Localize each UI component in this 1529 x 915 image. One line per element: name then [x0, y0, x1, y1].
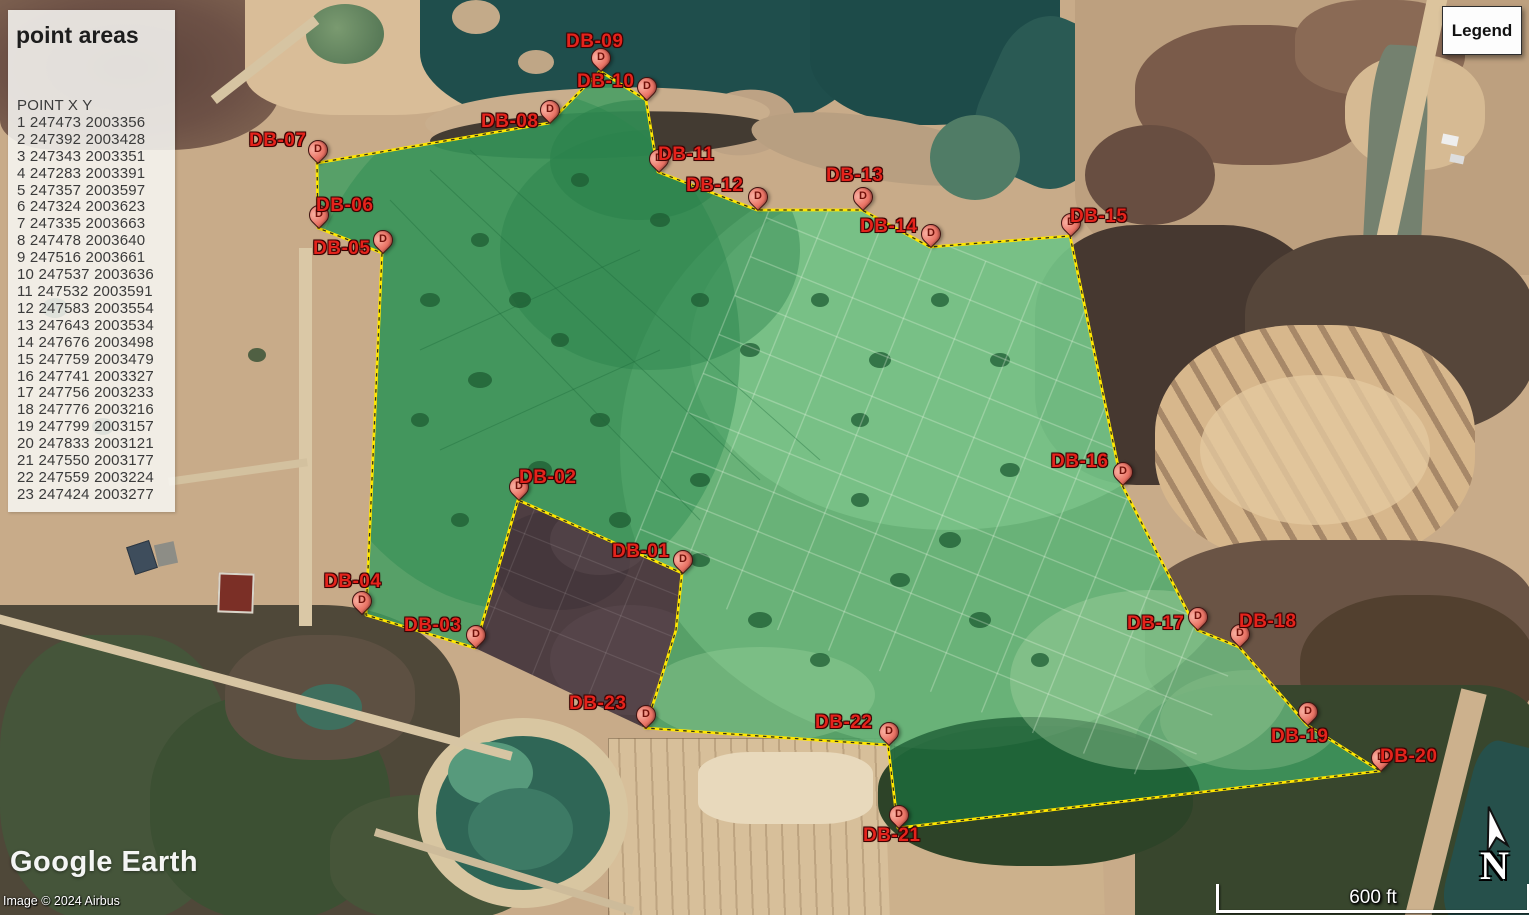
point-list-row: 15 247759 2003479: [17, 352, 154, 369]
pin-letter: D: [637, 706, 655, 724]
pin-icon[interactable]: D: [744, 183, 772, 211]
point-list-row: 10 247537 2003636: [17, 267, 154, 284]
point-list-row: 21 247550 2003177: [17, 453, 154, 470]
pin-letter: D: [1114, 463, 1132, 481]
placemark-label-db-22[interactable]: DB-22: [815, 712, 872, 734]
pin-icon[interactable]: D: [917, 220, 945, 248]
point-list-row: 4 247283 2003391: [17, 166, 154, 183]
pin-icon[interactable]: D: [669, 546, 697, 574]
placemark-label-db-01[interactable]: DB-01: [612, 541, 669, 563]
placemark-label-db-07[interactable]: DB-07: [249, 130, 306, 152]
point-list-row: 3 247343 2003351: [17, 149, 154, 166]
pin-icon[interactable]: D: [632, 701, 660, 729]
pin-icon[interactable]: D: [1294, 698, 1322, 726]
point-list-row: 1 247473 2003356: [17, 115, 154, 132]
north-letter: N: [1480, 842, 1509, 889]
pin-icon[interactable]: D: [304, 136, 332, 164]
point-list-row: 9 247516 2003661: [17, 250, 154, 267]
point-list-row: 11 247532 2003591: [17, 284, 154, 301]
pin-letter: D: [541, 101, 559, 119]
point-coordinate-list: POINT X Y 1 247473 20033562 247392 20034…: [17, 98, 154, 504]
point-list-row: 19 247799 2003157: [17, 419, 154, 436]
pin-letter: D: [674, 551, 692, 569]
placemark-label-db-04[interactable]: DB-04: [324, 571, 381, 593]
point-list-header: POINT X Y: [17, 98, 154, 115]
point-list-row: 23 247424 2003277: [17, 487, 154, 504]
pin-letter: D: [638, 78, 656, 96]
placemark-label-db-10[interactable]: DB-10: [577, 71, 634, 93]
pin-letter: D: [1189, 608, 1207, 626]
pin-letter: D: [922, 225, 940, 243]
pin-letter: D: [749, 188, 767, 206]
pin-letter: D: [467, 626, 485, 644]
point-list-row: 13 247643 2003534: [17, 318, 154, 335]
placemark-label-db-19[interactable]: DB-19: [1271, 726, 1328, 748]
point-list-row: 18 247776 2003216: [17, 402, 154, 419]
pin-letter: D: [890, 806, 908, 824]
placemark-label-db-16[interactable]: DB-16: [1051, 451, 1108, 473]
placemark-label-db-09[interactable]: DB-09: [566, 31, 623, 53]
point-list-row: 16 247741 2003327: [17, 369, 154, 386]
pin-icon[interactable]: D: [849, 183, 877, 211]
placemark-label-db-11[interactable]: DB-11: [658, 144, 714, 166]
north-compass: N: [1466, 804, 1529, 894]
pin-icon[interactable]: D: [1109, 458, 1137, 486]
placemark-label-db-02[interactable]: DB-02: [519, 467, 576, 489]
pin-letter: D: [854, 188, 872, 206]
panel-title: point areas: [16, 22, 175, 49]
placemark-label-db-13[interactable]: DB-13: [826, 165, 883, 187]
point-list-row: 14 247676 2003498: [17, 335, 154, 352]
pin-letter: D: [374, 231, 392, 249]
placemark-label-db-08[interactable]: DB-08: [481, 111, 538, 133]
pin-icon[interactable]: D: [633, 73, 661, 101]
placemark-label-db-06[interactable]: DB-06: [316, 195, 373, 217]
point-areas-panel: point areas POINT X Y 1 247473 20033562 …: [8, 10, 175, 512]
imagery-attribution: Image © 2024 Airbus: [3, 894, 120, 908]
google-earth-logo: Google Earth: [10, 846, 198, 879]
pin-letter: D: [880, 723, 898, 741]
placemark-label-db-17[interactable]: DB-17: [1127, 613, 1184, 635]
point-list-row: 7 247335 2003663: [17, 216, 154, 233]
pin-icon[interactable]: D: [875, 718, 903, 746]
point-list-row: 12 247583 2003554: [17, 301, 154, 318]
point-list-row: 6 247324 2003623: [17, 199, 154, 216]
pin-icon[interactable]: D: [1184, 603, 1212, 631]
pin-icon[interactable]: D: [462, 621, 490, 649]
pin-letter: D: [309, 141, 327, 159]
legend-button[interactable]: Legend: [1442, 6, 1522, 55]
point-list-row: 2 247392 2003428: [17, 132, 154, 149]
placemark-label-db-12[interactable]: DB-12: [686, 175, 743, 197]
placemark-label-db-18[interactable]: DB-18: [1239, 611, 1296, 633]
placemark-label-db-03[interactable]: DB-03: [404, 615, 461, 637]
placemarks-layer: DDB-01DDB-02DDB-03DDB-04DDB-05DDB-06DDB-…: [0, 0, 1529, 915]
point-list-row: 20 247833 2003121: [17, 436, 154, 453]
placemark-label-db-15[interactable]: DB-15: [1070, 206, 1127, 228]
pin-icon[interactable]: D: [536, 96, 564, 124]
pin-letter: D: [353, 592, 371, 610]
point-list-row: 5 247357 2003597: [17, 183, 154, 200]
placemark-label-db-05[interactable]: DB-05: [313, 238, 370, 260]
pin-letter: D: [1299, 703, 1317, 721]
point-list-row: 8 247478 2003640: [17, 233, 154, 250]
pin-icon[interactable]: D: [369, 226, 397, 254]
point-list-row: 22 247559 2003224: [17, 470, 154, 487]
placemark-label-db-23[interactable]: DB-23: [569, 693, 626, 715]
placemark-label-db-20[interactable]: DB-20: [1380, 746, 1437, 768]
placemark-label-db-21[interactable]: DB-21: [863, 825, 920, 847]
placemark-label-db-14[interactable]: DB-14: [860, 216, 917, 238]
point-list-row: 17 247756 2003233: [17, 385, 154, 402]
google-earth-viewport: DDB-01DDB-02DDB-03DDB-04DDB-05DDB-06DDB-…: [0, 0, 1529, 915]
